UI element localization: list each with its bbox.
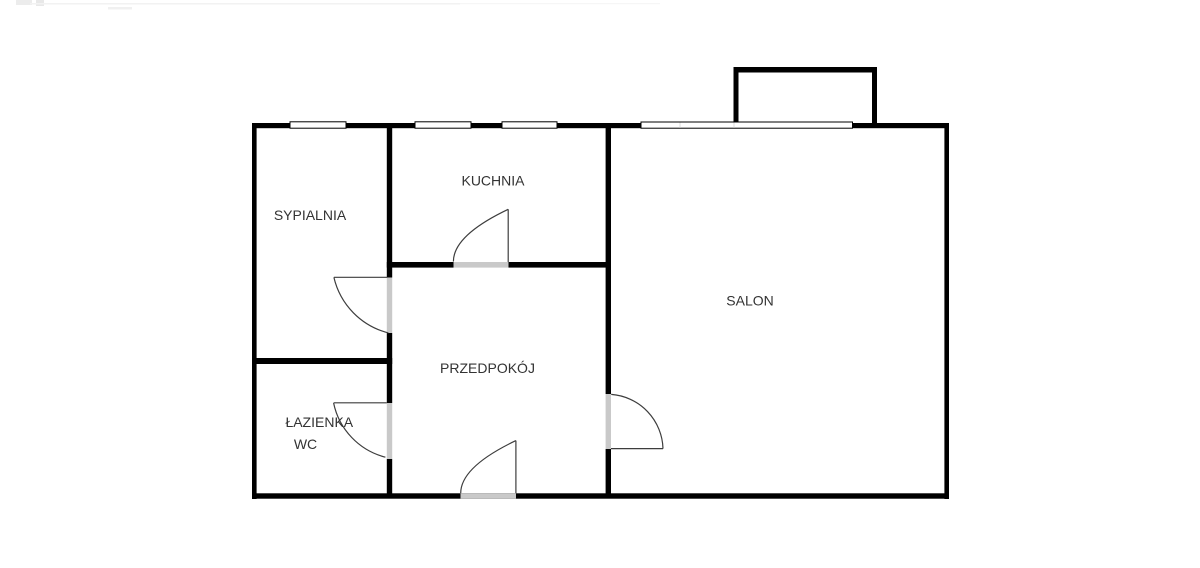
svg-text:SYPIALNIA: SYPIALNIA — [274, 207, 347, 223]
svg-text:ŁAZIENKA: ŁAZIENKA — [285, 414, 353, 430]
svg-text:PRZEDPOKÓJ: PRZEDPOKÓJ — [440, 360, 535, 376]
svg-text:WC: WC — [294, 436, 317, 452]
svg-text:KUCHNIA: KUCHNIA — [461, 173, 525, 189]
svg-text:SALON: SALON — [726, 292, 773, 308]
